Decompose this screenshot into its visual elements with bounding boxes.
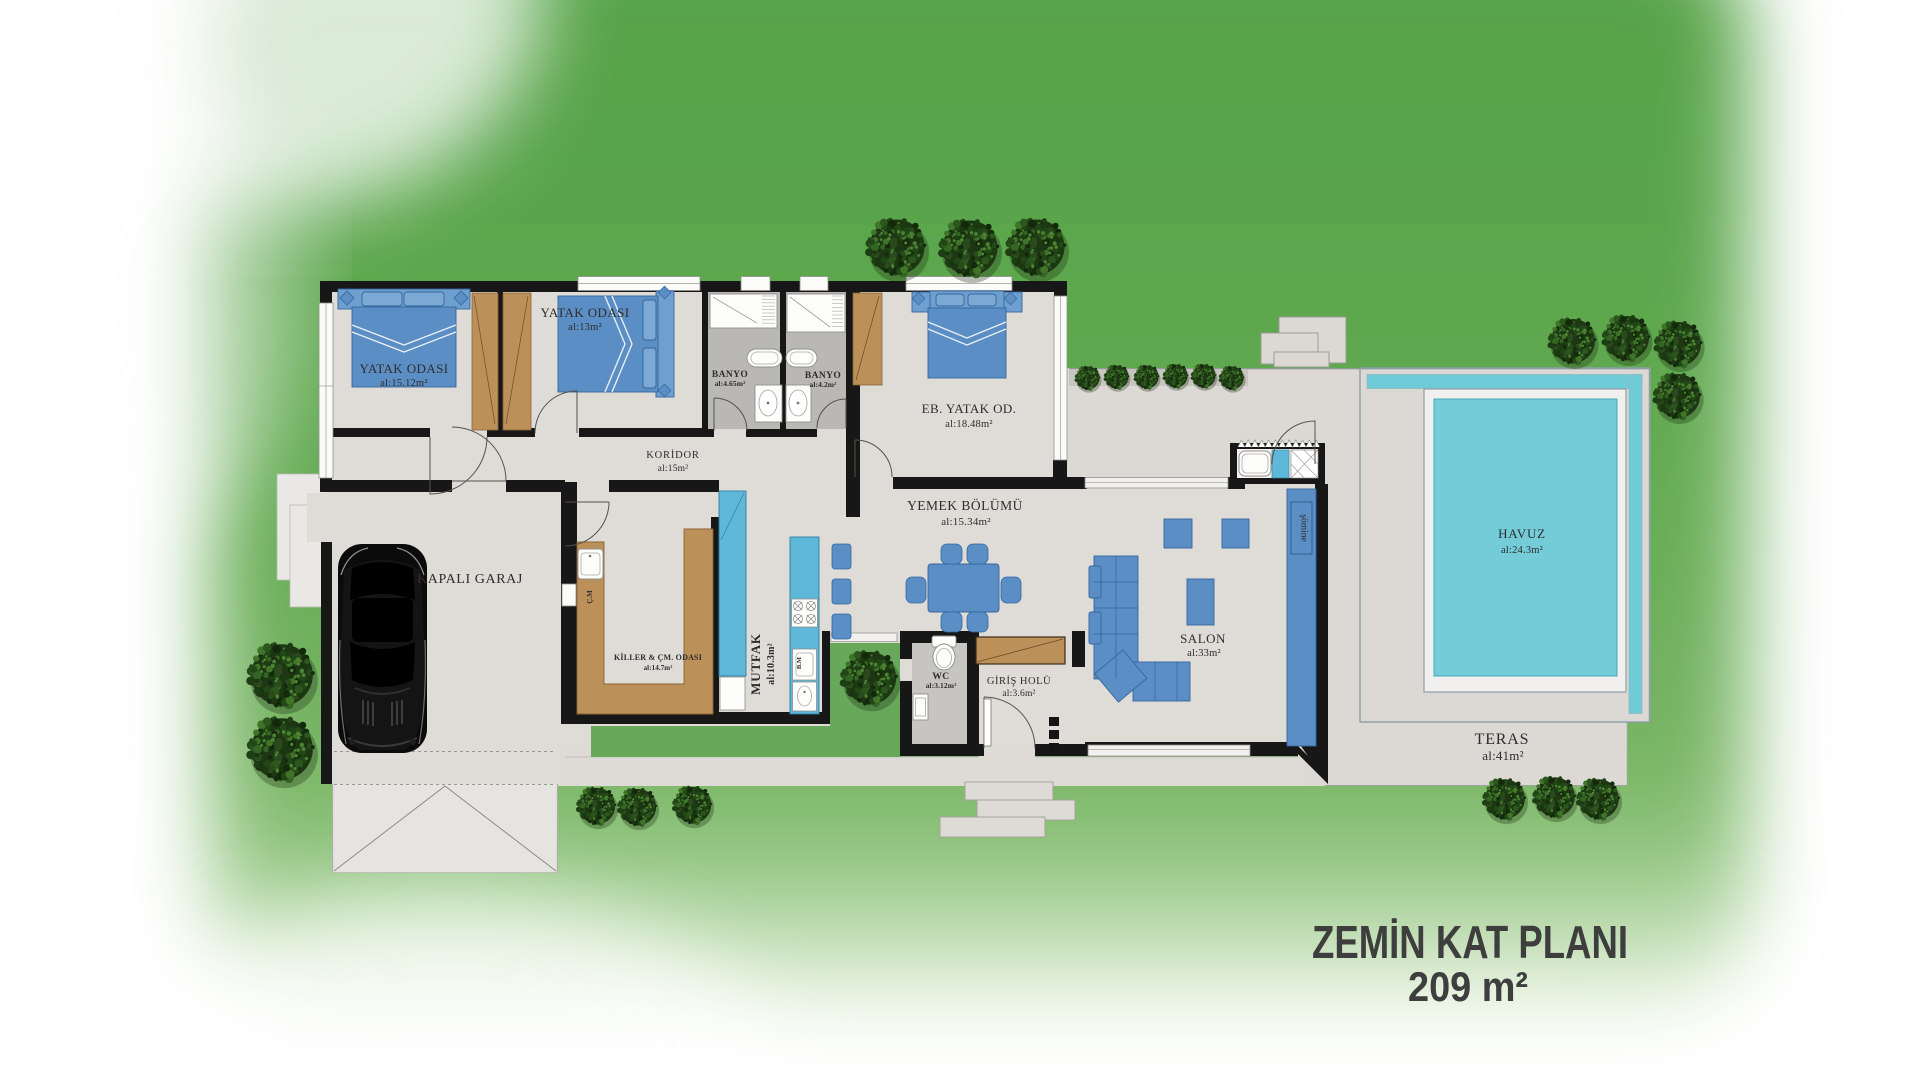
svg-text:B.M: B.M [796, 657, 803, 669]
svg-text:al:41m²: al:41m² [1482, 748, 1523, 763]
svg-text:al:15m²: al:15m² [658, 464, 689, 474]
svg-text:al:4.2m²: al:4.2m² [809, 380, 837, 389]
svg-text:MUTFAK: MUTFAK [748, 633, 763, 695]
svg-text:209 m²: 209 m² [1408, 963, 1528, 1010]
svg-text:HAVUZ: HAVUZ [1498, 526, 1546, 541]
svg-text:KAPALI GARAJ: KAPALI GARAJ [417, 572, 523, 587]
svg-text:ZEMİN KAT PLANI: ZEMİN KAT PLANI [1312, 916, 1628, 968]
svg-text:al:4.65m²: al:4.65m² [715, 379, 747, 388]
svg-text:Ç.M: Ç.M [586, 590, 594, 604]
svg-text:al:13m²: al:13m² [568, 322, 602, 333]
svg-text:YEMEK BÖLÜMÜ: YEMEK BÖLÜMÜ [907, 498, 1023, 513]
svg-text:al:3.6m²: al:3.6m² [1002, 689, 1035, 699]
svg-text:YATAK ODASI: YATAK ODASI [541, 305, 630, 320]
svg-text:KİLLER & ÇM. ODASI: KİLLER & ÇM. ODASI [614, 652, 702, 662]
svg-text:al:24.3m²: al:24.3m² [1501, 545, 1543, 556]
svg-text:KORİDOR: KORİDOR [646, 449, 699, 461]
svg-text:al:18.48m²: al:18.48m² [945, 419, 992, 430]
svg-text:GİRİŞ HOLÜ: GİRİŞ HOLÜ [987, 675, 1051, 687]
svg-text:YATAK ODASI: YATAK ODASI [360, 361, 449, 376]
svg-text:al:15.12m²: al:15.12m² [380, 378, 427, 389]
svg-text:al:33m²: al:33m² [1187, 648, 1221, 659]
svg-text:al:10.3m²: al:10.3m² [766, 643, 777, 685]
svg-text:al:15.34m²: al:15.34m² [941, 516, 991, 528]
svg-text:şömine: şömine [1299, 514, 1309, 541]
svg-text:TERAS: TERAS [1475, 731, 1530, 748]
svg-text:EB. YATAK OD.: EB. YATAK OD. [922, 401, 1017, 416]
svg-text:al:3.12m²: al:3.12m² [926, 681, 958, 690]
svg-text:SALON: SALON [1180, 631, 1226, 646]
svg-text:al:14.7m²: al:14.7m² [644, 664, 673, 672]
